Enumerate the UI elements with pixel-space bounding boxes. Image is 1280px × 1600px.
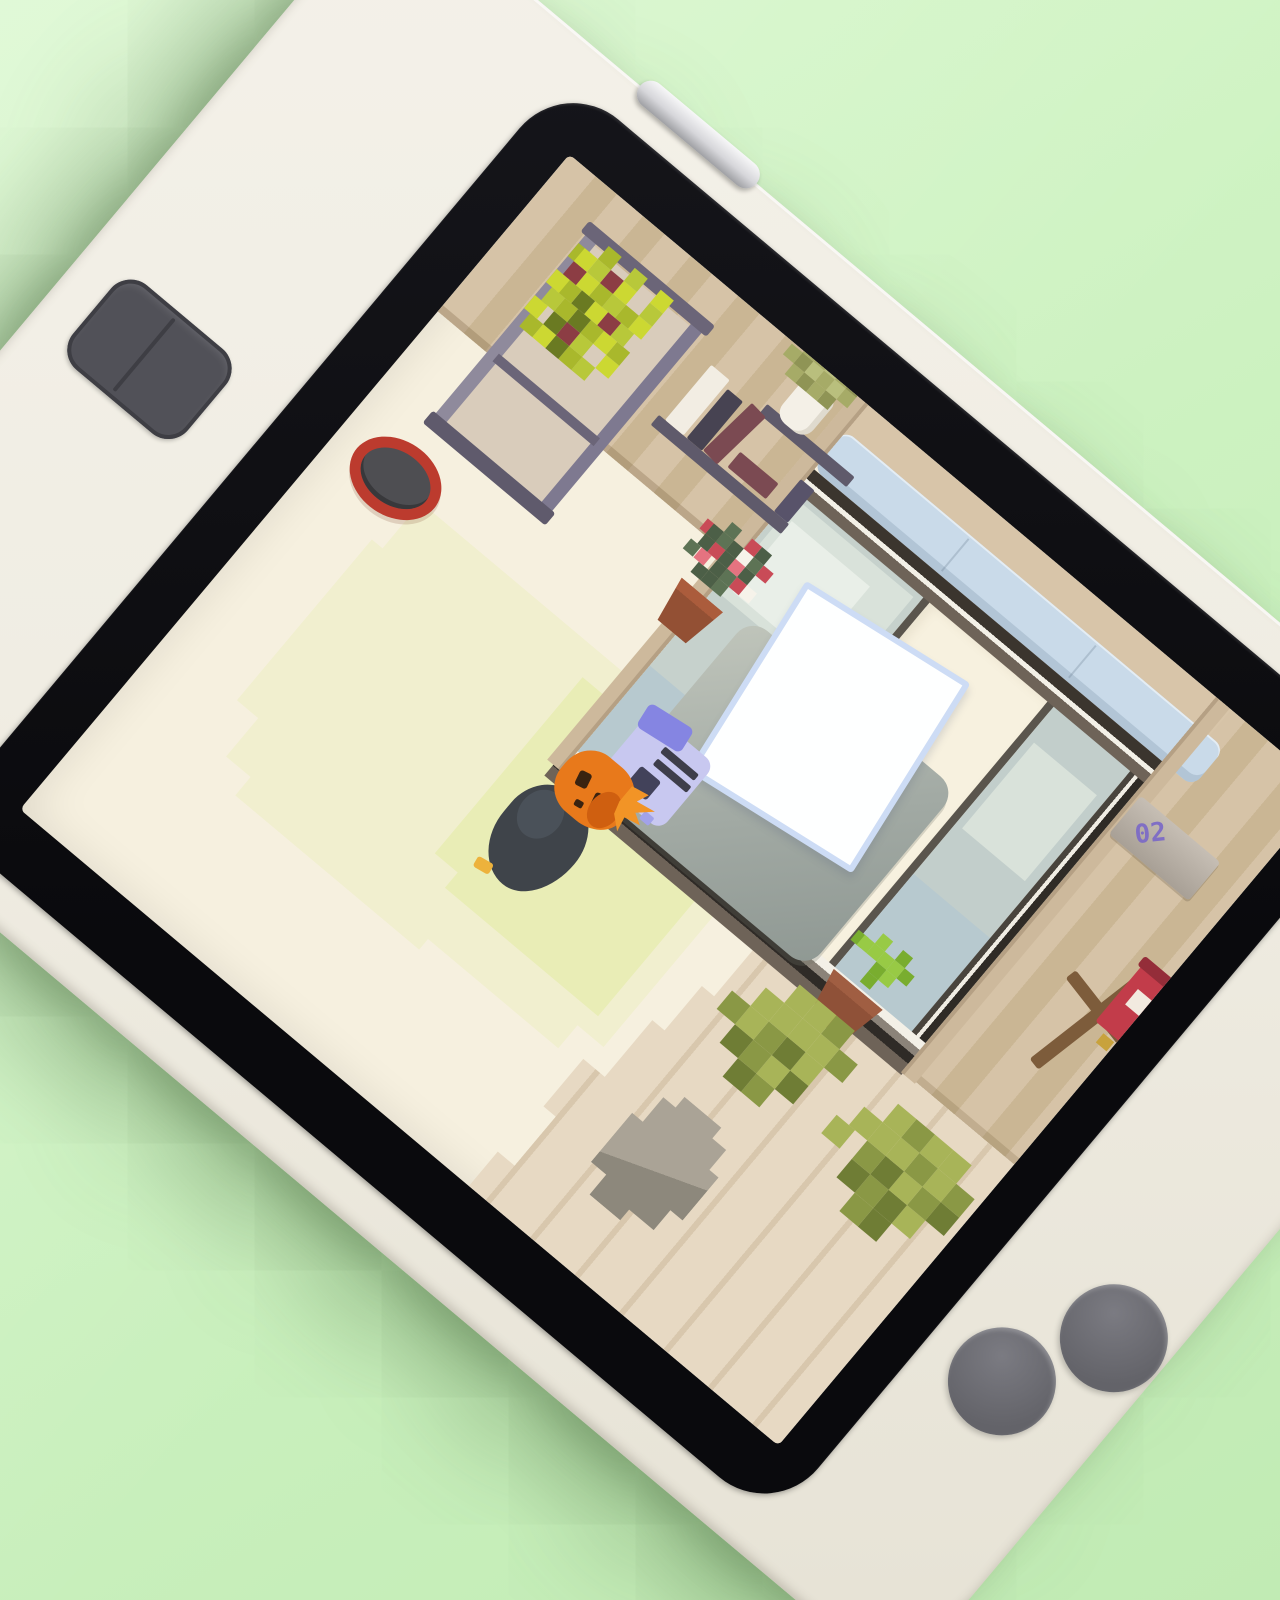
house-number-text: 02 [1133, 817, 1167, 850]
pumpkin-eye [574, 769, 593, 789]
front-camera-module [57, 269, 243, 450]
phone-round-button-left[interactable] [926, 1305, 1078, 1457]
olive-plant [803, 342, 823, 362]
phone-round-button-right[interactable] [1038, 1262, 1190, 1414]
phone-mockup: 02 [0, 0, 1280, 1600]
pumpkin-mouth [573, 798, 584, 809]
green-background: 02 [0, 0, 1280, 1600]
pumpkin-eye [589, 792, 608, 812]
book-slate [774, 479, 815, 523]
